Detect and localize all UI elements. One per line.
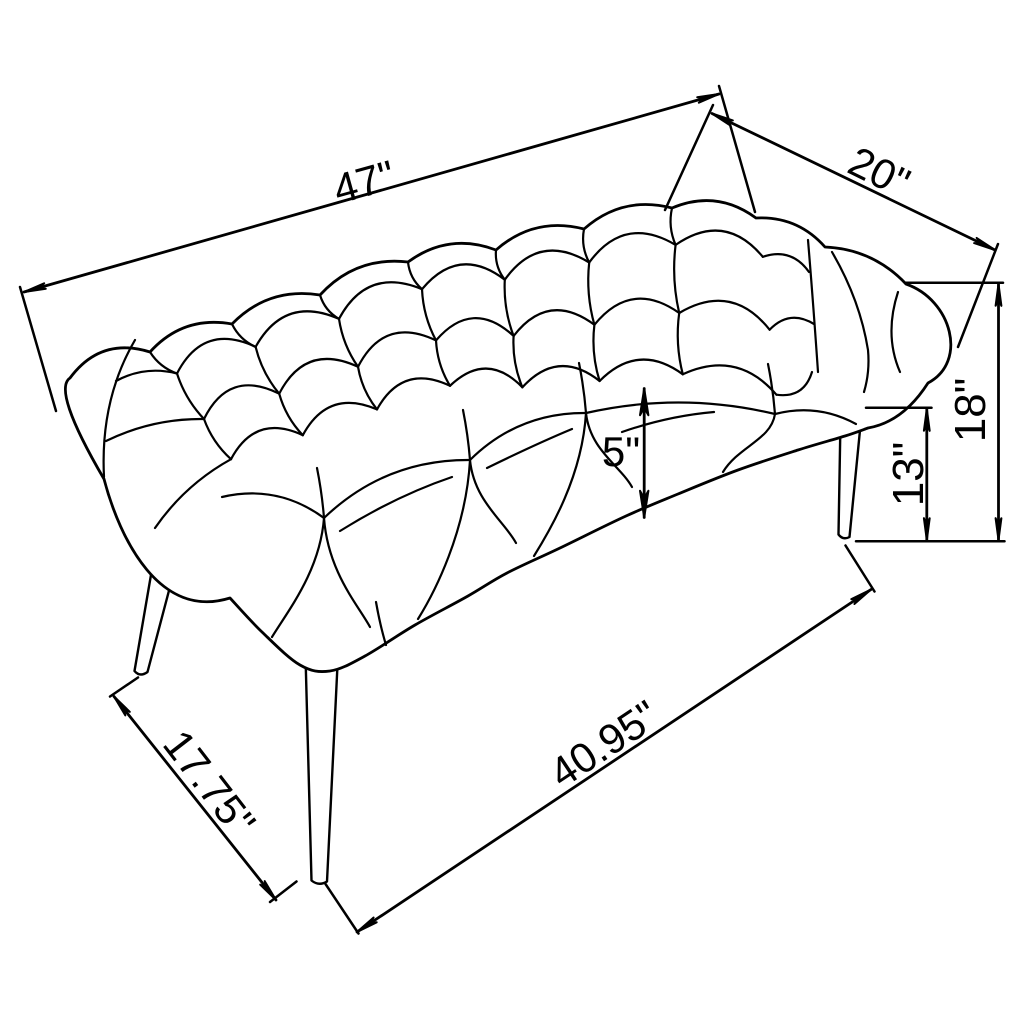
svg-text:5": 5" bbox=[602, 428, 640, 475]
svg-text:13": 13" bbox=[884, 442, 933, 507]
svg-text:18": 18" bbox=[946, 378, 995, 443]
